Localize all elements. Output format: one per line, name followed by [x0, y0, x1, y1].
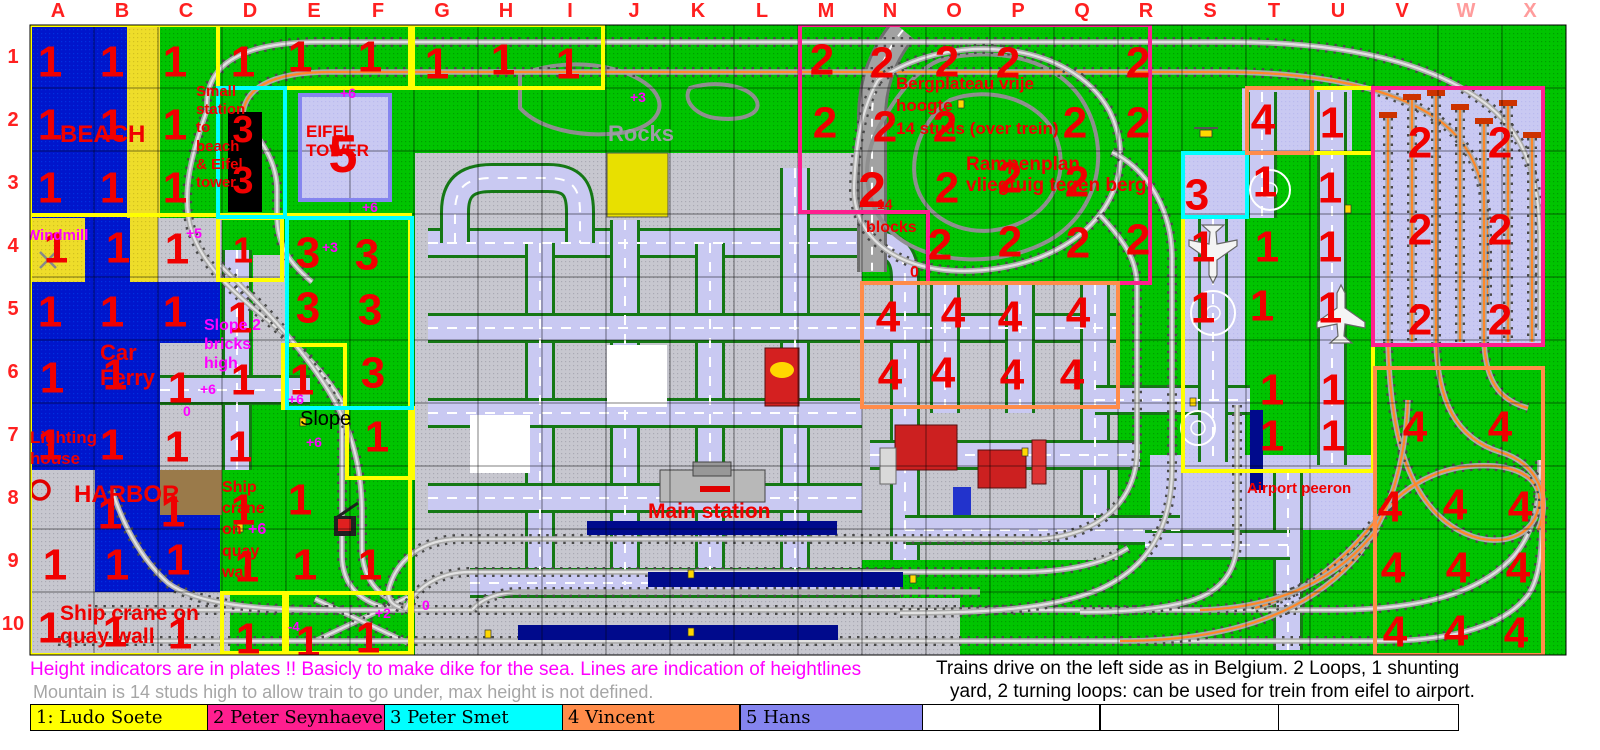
signal-icon [910, 575, 916, 583]
owner-marker: 2 [1126, 216, 1150, 265]
grid-column-label: W [1457, 0, 1476, 22]
owner-marker: 2 [928, 221, 952, 270]
map-label: Main station [648, 500, 771, 523]
owner-marker: 4 [1506, 544, 1531, 593]
owner-marker: 4 [941, 289, 966, 338]
owner-marker: 2 [935, 164, 959, 213]
owner-marker: 1 [1318, 284, 1342, 333]
map-label: high [204, 355, 238, 372]
layout-plan-page: { "grid": { "columns": ["A","B","C","D",… [0, 0, 1600, 750]
yellow-block [607, 153, 668, 217]
owner-marker: 1 [288, 476, 312, 525]
grid-row-label: 8 [7, 487, 18, 509]
owner-marker: 3 [358, 286, 382, 335]
owner-marker: 3 [361, 349, 385, 398]
buffer-stop [1379, 112, 1397, 118]
map-label: 14 studs (over trein) [896, 119, 1059, 138]
map-label: +6 [200, 381, 216, 397]
map-label: & Eifel [196, 156, 243, 173]
map-label: Windmill [26, 227, 88, 244]
owner-marker: 4 [1381, 544, 1406, 593]
legend-entry: 4 Vincent [562, 704, 740, 731]
owner-marker: 1 [358, 541, 382, 590]
station-platform [518, 625, 838, 640]
owner-marker: 1 [106, 224, 130, 273]
owner-marker: 4 [1251, 96, 1276, 145]
owner-marker: 1 [100, 164, 124, 213]
map-label: quay wall [60, 625, 155, 648]
empty-plot [607, 345, 667, 407]
owner-marker: 1 [1255, 223, 1279, 272]
owner-marker: 1 [1260, 366, 1284, 415]
map-label: Slope [300, 408, 351, 430]
map-label: Lighting [30, 428, 97, 447]
owner-marker: 4 [1443, 481, 1468, 530]
owner-marker: 2 [810, 36, 834, 85]
grid-row-label: 4 [7, 235, 19, 257]
owner-marker: 1 [1318, 223, 1342, 272]
station-platform [648, 572, 903, 587]
map-label: Airport peeron [1247, 480, 1351, 497]
map-label: +6 [340, 85, 356, 101]
sand-strip [130, 218, 158, 282]
map-label: beach [196, 138, 239, 155]
owner-marker: 2 [1126, 99, 1150, 148]
grid-column-label: L [756, 0, 768, 22]
map-label: crane [222, 500, 265, 517]
map-label: tower [196, 174, 236, 191]
signal-icon [958, 100, 964, 108]
owner-marker: 1 [100, 38, 124, 87]
grid-row-label: 10 [2, 613, 24, 635]
owner-marker: 1 [365, 413, 389, 462]
owner-marker: 1 [425, 40, 449, 89]
map-label: Slope 2 [204, 317, 261, 334]
map-label: +6 [288, 391, 304, 407]
owner-marker: 1 [166, 536, 190, 585]
main-station-roof [693, 462, 731, 476]
grid-row-label: 7 [7, 424, 18, 446]
map-label: station [196, 101, 245, 118]
buffer-stop [1427, 90, 1445, 96]
helicopter-icon [1200, 130, 1212, 137]
owner-marker: 1 [38, 164, 62, 213]
owner-marker: 4 [876, 293, 901, 342]
map-label: BEACH [60, 121, 145, 148]
empty-plot [470, 415, 530, 473]
grid-column-label: A [51, 0, 65, 22]
map-label: Ship crane on [60, 602, 199, 625]
grid-column-label: B [115, 0, 129, 22]
grid-row-label: 1 [7, 46, 18, 68]
map-label: +5 [186, 225, 202, 241]
grid-column-label: O [946, 0, 962, 22]
owner-marker: 2 [1066, 219, 1090, 268]
legend-entry: 1: Ludo Soete [30, 704, 210, 731]
grid-row-label: 6 [7, 361, 18, 383]
owner-marker: 4 [931, 349, 956, 398]
restaurant-logo [770, 362, 794, 378]
signal-icon [485, 630, 491, 638]
owner-marker: 3 [1185, 171, 1209, 220]
owner-marker: 4 [878, 351, 903, 400]
owner-marker: 1 [491, 36, 515, 85]
map-label: hoogte [896, 96, 953, 115]
owner-marker: 2 [1408, 296, 1432, 345]
signal-icon [688, 570, 694, 578]
grid-column-label: T [1268, 0, 1280, 22]
track-layout-canvas[interactable]: 1111111111111111111111111111111111111111… [0, 0, 1600, 750]
map-label: Small [196, 83, 236, 100]
grid-column-label: J [628, 0, 639, 22]
map-label: 14 [877, 196, 893, 212]
owner-marker: 1 [233, 230, 253, 271]
owner-marker: 4 [1403, 403, 1428, 452]
owner-marker: 2 [873, 103, 897, 152]
grid-row-label: 9 [7, 550, 18, 572]
owner-marker: 1 [1250, 282, 1274, 331]
legend-entry: 2 Peter Seynhaeve [207, 704, 385, 731]
owner-marker: 1 [1260, 412, 1284, 461]
grid-column-label: R [1139, 0, 1154, 22]
map-label: wall [221, 564, 252, 581]
map-label: Ferry [100, 365, 156, 390]
grid-column-label: M [818, 0, 835, 22]
owner-marker: 2 [870, 39, 894, 88]
building-blue [953, 487, 971, 515]
owner-marker: 1 [163, 38, 187, 87]
buffer-stop [1451, 104, 1469, 110]
owner-marker: 1 [228, 423, 252, 472]
grid-column-label: G [434, 0, 450, 22]
map-area[interactable]: 1111111111111111111111111111111111111111… [26, 25, 1566, 667]
owner-marker: 4 [1446, 544, 1471, 593]
owner-marker: 4 [1060, 351, 1085, 400]
map-label: house [30, 449, 80, 468]
owner-marker: 1 [163, 164, 187, 213]
signal-icon [1190, 398, 1196, 406]
owner-marker: 2 [1488, 119, 1512, 168]
owner-marker: 4 [1508, 483, 1533, 532]
owner-marker: 1 [38, 101, 62, 150]
grid-column-label: S [1203, 0, 1216, 22]
owner-marker: 1 [358, 33, 382, 82]
map-label: +6 [306, 434, 322, 450]
legend-entry: 3 Peter Smet [384, 704, 563, 731]
map-label: on [222, 521, 242, 538]
grid-row-label: 2 [7, 109, 18, 131]
legend-entry-empty [1278, 704, 1459, 731]
owner-marker: 1 [38, 38, 62, 87]
buffer-stop [1523, 132, 1541, 138]
buffer-stop [1403, 94, 1421, 100]
mountain-note: Mountain is 14 studs high to allow train… [33, 682, 653, 703]
owner-marker: 2 [1488, 296, 1512, 345]
grid-column-label: C [179, 0, 193, 22]
owner-marker: 2 [998, 218, 1022, 267]
owner-marker: 1 [165, 423, 189, 472]
owner-marker: 1 [105, 541, 129, 590]
grid-column-label: N [883, 0, 897, 22]
legend-entry: 5 Hans [740, 704, 923, 731]
owner-marker: 4 [1000, 351, 1025, 400]
map-label: 0 [183, 403, 191, 419]
owner-marker: 1 [1191, 284, 1215, 333]
map-label: Ship [222, 479, 257, 496]
signal-icon [1022, 448, 1028, 456]
map-label: +3 [630, 89, 646, 105]
map-label: HARBOR [74, 481, 179, 508]
owner-marker: 1 [1253, 158, 1277, 207]
owner-marker: 1 [1191, 223, 1215, 272]
map-label: 0 [422, 597, 430, 613]
owner-marker: 4 [1488, 403, 1513, 452]
owner-marker: 1 [1321, 412, 1345, 461]
grid-column-label: I [567, 0, 573, 22]
map-label: -4 [288, 619, 300, 634]
station-platform [587, 521, 837, 535]
map-label: to [196, 119, 210, 136]
owner-marker: 1 [38, 604, 62, 653]
owner-marker: 4 [1378, 483, 1403, 532]
owner-marker: 4 [998, 293, 1023, 342]
map-label: +6 [248, 521, 266, 538]
owner-marker: 1 [293, 541, 317, 590]
owner-marker: 2 [1063, 99, 1087, 148]
map-label: quay [222, 543, 259, 560]
owner-marker: 3 [296, 229, 320, 278]
owner-marker: 3 [355, 231, 379, 280]
map-label: EIFEL [306, 122, 354, 141]
grid-column-label: D [243, 0, 257, 22]
grid-column-label: E [307, 0, 320, 22]
grid-row-label: 5 [7, 298, 18, 320]
owner-marker: 1 [43, 541, 67, 590]
owner-marker: 3 [296, 284, 320, 333]
owner-marker: 1 [100, 421, 124, 470]
grid-column-label: K [691, 0, 706, 22]
building-red-roof [978, 450, 1026, 488]
legend-entry-empty [922, 704, 1100, 731]
owner-marker: 1 [100, 288, 124, 337]
map-label: Bergplateau vrije [896, 74, 1034, 93]
owner-marker: 1 [38, 288, 62, 337]
owner-marker: 1 [556, 40, 580, 89]
grid-column-label: P [1011, 0, 1024, 22]
owner-marker: 4 [1383, 608, 1408, 657]
owner-marker: 1 [1321, 366, 1345, 415]
main-station-sign [700, 486, 730, 492]
owner-marker: 2 [813, 99, 837, 148]
signal-icon [1345, 205, 1351, 213]
owner-marker: 2 [1408, 119, 1432, 168]
owner-marker: 4 [1444, 607, 1469, 656]
grid-row-label: 3 [7, 172, 18, 194]
owner-marker: 1 [163, 101, 187, 150]
owner-marker: 2 [1408, 206, 1432, 255]
grid-column-label: Q [1074, 0, 1090, 22]
grid-column-label: V [1395, 0, 1409, 22]
grid-column-label: U [1331, 0, 1345, 22]
legend-entry-empty [1100, 704, 1279, 731]
owner-marker: 1 [288, 33, 312, 82]
map-label: +3 [322, 239, 338, 255]
map-label: bricks [204, 336, 251, 353]
map-label: blocks [866, 219, 917, 236]
owner-marker: 1 [40, 354, 64, 403]
owner-marker: 1 [1320, 99, 1344, 148]
map-label: +2 [375, 605, 391, 621]
signal-icon [688, 628, 694, 636]
map-label: vliegtuig tegen berg [966, 175, 1147, 196]
grid-column-label: X [1523, 0, 1537, 22]
owner-marker: 2 [1126, 39, 1150, 88]
owner-marker: 1 [163, 288, 187, 337]
map-label: +6 [362, 199, 378, 215]
traffic-note-line2: yard, 2 turning loops: can be used for t… [950, 681, 1475, 703]
owner-marker: 2 [1488, 206, 1512, 255]
height-indicators-note: Height indicators are in plates !! Basic… [30, 659, 861, 681]
grid-column-label: H [499, 0, 513, 22]
map-label: Rampenplan [966, 154, 1080, 175]
map-label: 0 [910, 264, 919, 281]
tower-building [1032, 440, 1046, 484]
owner-marker: 1 [231, 38, 255, 87]
map-label: TOWER [306, 141, 369, 160]
owner-marker: 4 [1066, 289, 1091, 338]
grid-column-label: F [372, 0, 384, 22]
owner-marker: 1 [236, 615, 260, 664]
map-label: Rocks [608, 121, 674, 146]
map-label: Car [100, 340, 137, 365]
traffic-note-line1: Trains drive on the left side as in Belg… [936, 658, 1459, 680]
owner-marker: 1 [1318, 164, 1342, 213]
owner-marker: 4 [1504, 609, 1529, 658]
